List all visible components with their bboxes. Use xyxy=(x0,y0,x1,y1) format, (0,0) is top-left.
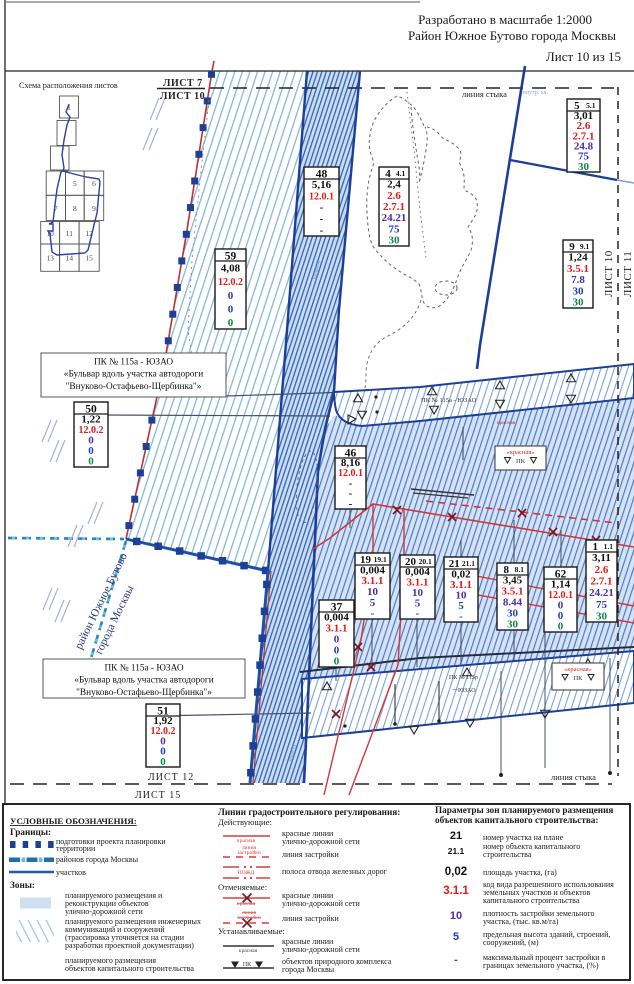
svg-text:0: 0 xyxy=(228,290,234,302)
svg-text:-: - xyxy=(454,954,458,966)
svg-text:капитального строительства: капитального строительства xyxy=(483,896,580,905)
svg-text:номер участка на плане: номер участка на плане xyxy=(483,833,564,842)
svg-text:Параметры зон планируемого раз: Параметры зон планируемого размещения xyxy=(435,805,613,815)
svg-text:-: - xyxy=(320,213,324,225)
svg-text:0: 0 xyxy=(228,317,234,329)
svg-text:застройки: застройки xyxy=(237,849,261,856)
svg-text:1,14: 1,14 xyxy=(551,578,571,590)
svg-text:объектов капитального строител: объектов капитального строительства: xyxy=(435,815,598,825)
svg-text:0,02: 0,02 xyxy=(445,866,467,878)
svg-text:15: 15 xyxy=(85,254,93,263)
svg-text:«Бульвар вдоль участка автодор: «Бульвар вдоль участка автодороги xyxy=(64,370,203,380)
svg-text:красная: красная xyxy=(237,901,256,907)
svg-text:ПК: ПК xyxy=(516,458,526,465)
svg-text:1.1: 1.1 xyxy=(604,542,614,551)
svg-text:территории: территории xyxy=(56,844,96,853)
svg-text:13: 13 xyxy=(46,254,54,263)
svg-text:линия застройки: линия застройки xyxy=(282,914,340,923)
svg-text:внутр. кв.: внутр. кв. xyxy=(523,90,548,96)
svg-text:-: - xyxy=(320,202,324,214)
svg-text:Зоны:: Зоны: xyxy=(10,880,35,890)
svg-text:УСЛОВНЫЕ ОБОЗНАЧЕНИЯ:: УСЛОВНЫЕ ОБОЗНАЧЕНИЯ: xyxy=(10,816,137,826)
svg-text:9: 9 xyxy=(92,204,96,213)
svg-text:участков: участков xyxy=(56,868,86,877)
svg-text:11: 11 xyxy=(66,229,73,238)
svg-text:75: 75 xyxy=(596,599,608,611)
svg-text:Лист 10 из 15: Лист 10 из 15 xyxy=(546,49,621,64)
svg-text:2.7.1: 2.7.1 xyxy=(383,201,405,213)
svg-text:-: - xyxy=(349,498,353,510)
svg-text:12.0.1: 12.0.1 xyxy=(309,191,334,202)
svg-text:ЛИСТ 12: ЛИСТ 12 xyxy=(148,772,194,783)
svg-text:1,92: 1,92 xyxy=(153,715,173,727)
svg-text:Устанавливаемые:: Устанавливаемые: xyxy=(218,926,285,936)
svg-text:59: 59 xyxy=(225,251,237,263)
svg-text:границах земельного участка, (: границах земельного участка, (%) xyxy=(483,961,599,970)
svg-text:города Москвы: города Москвы xyxy=(282,965,335,974)
svg-text:красная: красная xyxy=(239,948,258,954)
svg-text:красная: красная xyxy=(237,838,256,844)
svg-text:10: 10 xyxy=(450,910,462,922)
svg-text:12.0.2: 12.0.2 xyxy=(218,277,243,288)
svg-text:Границы:: Границы: xyxy=(10,827,51,837)
svg-text:5: 5 xyxy=(73,179,77,188)
svg-text:ПК № 115а - ЮЗАО: ПК № 115а - ЮЗАО xyxy=(94,357,173,367)
svg-text:2.7.1: 2.7.1 xyxy=(591,575,613,587)
svg-text:"Внуково-Остафьево-Щербинка"»: "Внуково-Остафьево-Щербинка"» xyxy=(66,381,202,392)
svg-text:объектов капитального строител: объектов капитального строительства xyxy=(65,964,194,973)
svg-text:строительства: строительства xyxy=(483,850,532,859)
svg-text:ЛИСТ 10: ЛИСТ 10 xyxy=(603,250,615,297)
svg-text:0: 0 xyxy=(228,303,234,315)
svg-text:красная: красная xyxy=(497,420,516,426)
svg-text:19.1: 19.1 xyxy=(374,555,387,564)
svg-text:30: 30 xyxy=(389,235,401,247)
svg-text:линия стыка: линия стыка xyxy=(551,772,596,782)
svg-text:линия стыка: линия стыка xyxy=(462,89,507,99)
svg-text:8: 8 xyxy=(73,204,77,213)
svg-text:линия застройки: линия застройки xyxy=(282,850,340,859)
svg-text:1,22: 1,22 xyxy=(81,413,101,425)
svg-text:2.6: 2.6 xyxy=(595,564,609,576)
svg-text:ПК № 115р: ПК № 115р xyxy=(449,675,478,681)
svg-text:ЛИСТ 11: ЛИСТ 11 xyxy=(622,251,634,297)
svg-text:－ЮЗАО: －ЮЗАО xyxy=(452,688,476,694)
svg-text:«красная»: «красная» xyxy=(564,666,592,673)
svg-text:30: 30 xyxy=(596,610,608,622)
svg-text:24.21: 24.21 xyxy=(589,587,614,599)
svg-text:3,11: 3,11 xyxy=(592,552,611,564)
svg-text:5.1: 5.1 xyxy=(586,101,596,110)
svg-text:30: 30 xyxy=(507,619,519,631)
svg-text:улично-дорожной сети: улично-дорожной сети xyxy=(282,945,361,954)
svg-text:ЛИСТ 10: ЛИСТ 10 xyxy=(160,91,205,102)
svg-text:Схема расположения листов: Схема расположения листов xyxy=(19,81,118,90)
svg-text:21: 21 xyxy=(450,830,462,842)
svg-text:21.1: 21.1 xyxy=(448,846,465,856)
svg-text:30: 30 xyxy=(573,297,585,309)
svg-text:6: 6 xyxy=(92,179,96,188)
svg-text:30: 30 xyxy=(573,285,585,297)
svg-text:7.8: 7.8 xyxy=(571,274,585,286)
svg-text:0: 0 xyxy=(88,456,94,468)
svg-text:ПК: ПК xyxy=(243,962,252,968)
svg-text:-: - xyxy=(320,225,324,237)
svg-text:3.1.1: 3.1.1 xyxy=(443,885,469,897)
svg-text:«Бульвар вдоль участка автодор: «Бульвар вдоль участка автодороги xyxy=(74,676,213,686)
svg-text:Разработано в масштабе 1:2000: Разработано в масштабе 1:2000 xyxy=(418,12,592,27)
svg-text:0: 0 xyxy=(160,756,166,768)
svg-text:улично-дорожной сети: улично-дорожной сети xyxy=(65,907,144,916)
svg-text:"Внуково-Остафьево-Щербинка"»: "Внуково-Остафьево-Щербинка"» xyxy=(76,687,212,698)
svg-text:0: 0 xyxy=(334,656,340,668)
svg-text:площадь участка, (га): площадь участка, (га) xyxy=(483,868,557,877)
svg-text:ЛИСТ 7: ЛИСТ 7 xyxy=(163,78,203,89)
svg-text:ПК: ПК xyxy=(573,675,583,682)
svg-text:8.1: 8.1 xyxy=(515,565,525,574)
svg-text:0: 0 xyxy=(558,621,564,633)
svg-text:9.1: 9.1 xyxy=(580,242,590,251)
svg-text:Отменяемые:: Отменяемые: xyxy=(218,882,267,892)
svg-text:20.1: 20.1 xyxy=(419,557,432,566)
svg-text:районов города Москвы: районов города Москвы xyxy=(56,855,139,864)
svg-text:сооружений, (м): сооружений, (м) xyxy=(483,938,539,947)
svg-text:разработки проектной документа: разработки проектной документации) xyxy=(65,941,194,950)
svg-text:-: - xyxy=(371,608,375,620)
svg-text:ПОЖД: ПОЖД xyxy=(238,870,255,876)
svg-text:полоса отвода железных дорог: полоса отвода железных дорог xyxy=(282,867,388,876)
svg-text:«красная»: «красная» xyxy=(506,449,534,456)
svg-text:улично-дорожной сети: улично-дорожной сети xyxy=(282,837,361,846)
svg-text:24.21: 24.21 xyxy=(382,212,407,224)
svg-text:8,16: 8,16 xyxy=(341,457,361,469)
svg-text:1,24: 1,24 xyxy=(568,252,588,264)
svg-text:ЛИСТ 15: ЛИСТ 15 xyxy=(135,790,181,801)
svg-text:4,08: 4,08 xyxy=(221,263,241,275)
svg-text:участка, (тыс. кв.м/га): участка, (тыс. кв.м/га) xyxy=(483,917,559,926)
svg-text:ПК № 115а - ЮЗАО: ПК № 115а - ЮЗАО xyxy=(104,663,183,673)
svg-text:Район Южное Бутово города Моск: Район Южное Бутово города Москвы xyxy=(408,28,616,43)
svg-text:30: 30 xyxy=(578,161,590,173)
svg-text:4.1: 4.1 xyxy=(396,169,406,178)
svg-text:3.5.1: 3.5.1 xyxy=(567,263,589,275)
svg-text:2,4: 2,4 xyxy=(387,179,401,191)
svg-text:Линии градостроительного регул: Линии градостроительного регулирования: xyxy=(218,807,400,817)
svg-text:-: - xyxy=(459,611,463,623)
svg-text:5,16: 5,16 xyxy=(312,179,332,191)
svg-text:21.1: 21.1 xyxy=(462,559,475,568)
svg-text:5: 5 xyxy=(453,931,459,943)
svg-text:улично-дорожной сети: улично-дорожной сети xyxy=(282,899,361,908)
svg-text:ПК № 115а - ЮЗАО: ПК № 115а - ЮЗАО xyxy=(421,397,477,404)
svg-text:Действующие:: Действующие: xyxy=(218,817,272,827)
svg-text:-: - xyxy=(416,608,420,620)
